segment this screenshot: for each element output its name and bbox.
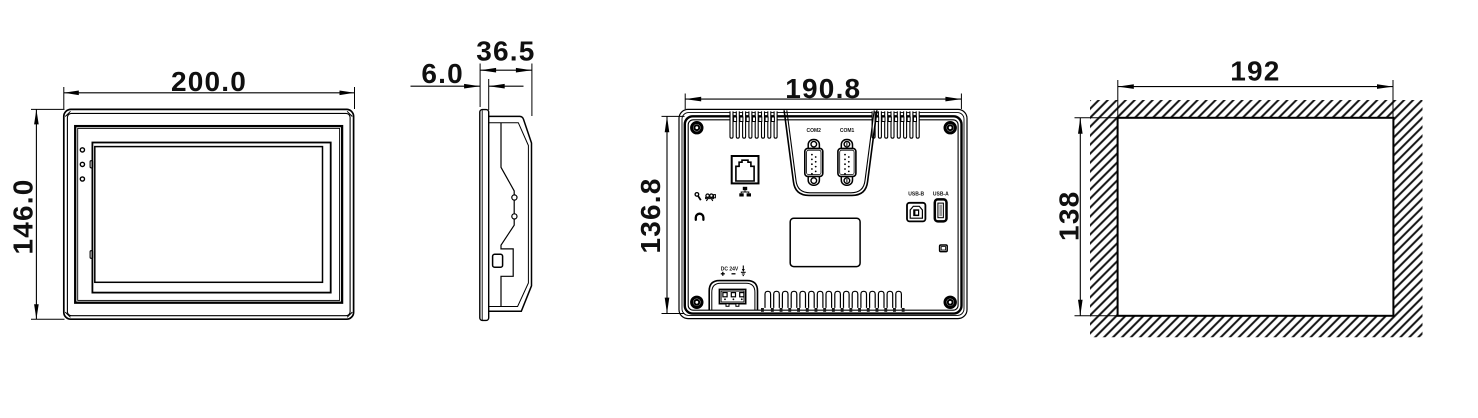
svg-text:USB-B: USB-B — [908, 192, 924, 198]
svg-text:138: 138 — [1053, 191, 1084, 241]
svg-text:DC 24V: DC 24V — [721, 267, 739, 273]
svg-text:200.0: 200.0 — [171, 66, 247, 97]
svg-text:6.0: 6.0 — [421, 58, 464, 89]
svg-text:USB-A: USB-A — [933, 192, 949, 198]
svg-text:COM1: COM1 — [840, 128, 855, 134]
svg-text:36.5: 36.5 — [476, 36, 535, 67]
svg-text:192: 192 — [1230, 56, 1280, 87]
svg-text:136.8: 136.8 — [635, 177, 666, 253]
svg-text:146.0: 146.0 — [8, 178, 39, 254]
svg-text:190.8: 190.8 — [785, 73, 861, 104]
svg-text:COM2: COM2 — [806, 128, 821, 134]
